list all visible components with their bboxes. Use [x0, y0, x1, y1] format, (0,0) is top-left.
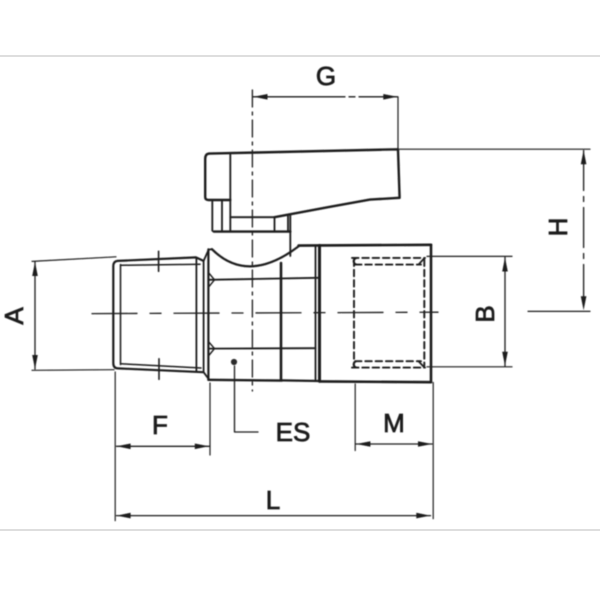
- svg-text:B: B: [470, 305, 500, 322]
- svg-text:ES: ES: [276, 417, 311, 447]
- svg-text:L: L: [266, 485, 280, 515]
- svg-text:M: M: [383, 408, 405, 438]
- svg-text:F: F: [152, 410, 168, 440]
- svg-text:H: H: [543, 218, 573, 237]
- svg-text:G: G: [316, 61, 336, 91]
- svg-text:A: A: [0, 307, 29, 325]
